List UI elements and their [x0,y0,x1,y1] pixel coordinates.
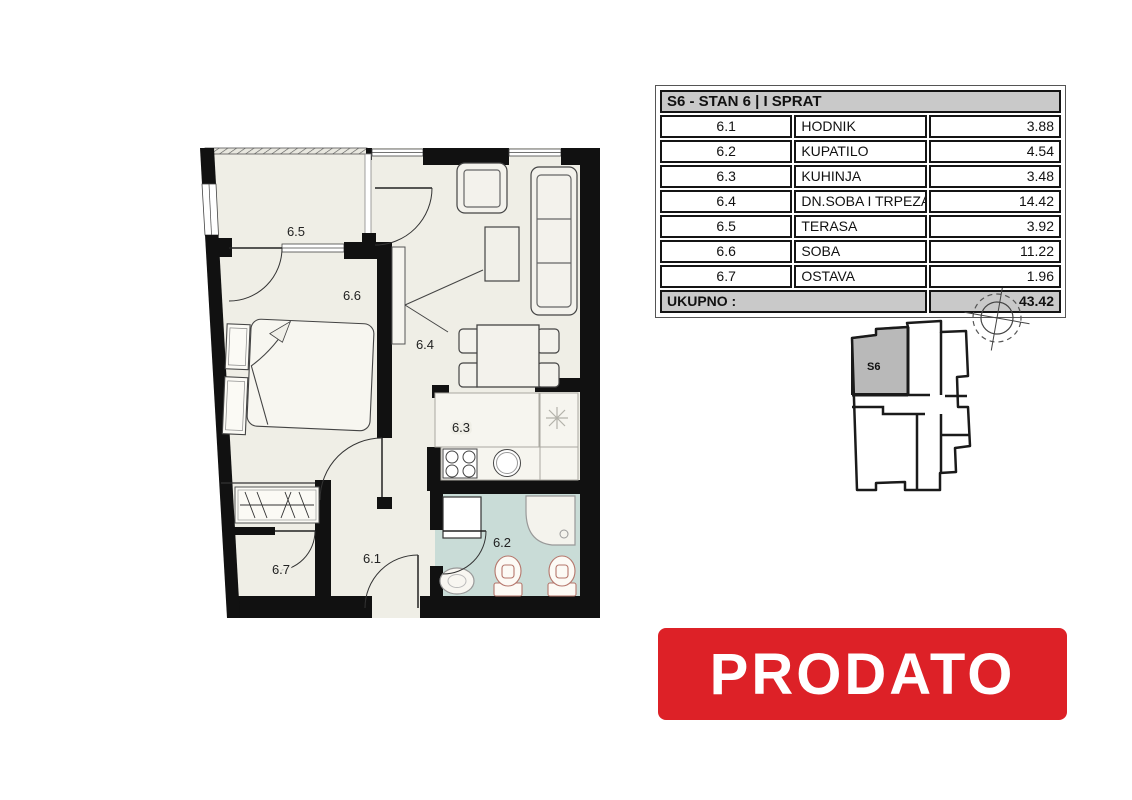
room-number-cell: 6.1 [660,115,792,138]
room-name-cell: DN.SOBA I TRPEZARIJA [794,190,926,213]
shelf [392,247,405,344]
table-header-row: S6 - STAN 6 | I SPRAT [660,90,1061,113]
room-label-6-4: 6.4 [416,337,434,352]
room-area-cell: 3.48 [929,165,1061,188]
room-label-6-3: 6.3 [452,420,470,435]
table-row: 6.4 DN.SOBA I TRPEZARIJA 14.42 [660,190,1061,213]
table-row: 6.5 TERASA 3.92 [660,215,1061,238]
room-number-cell: 6.6 [660,240,792,263]
table-row: 6.6 SOBA 11.22 [660,240,1061,263]
table-row: 6.2 KUPATILO 4.54 [660,140,1061,163]
bed [247,319,375,431]
counter [540,393,578,480]
nightstand [225,324,250,370]
room-number-cell: 6.7 [660,265,792,288]
bedroom-furniture [222,318,374,440]
room-number-cell: 6.3 [660,165,792,188]
room-area-cell: 4.54 [929,140,1061,163]
prodato-banner-text: PRODATO [710,641,1016,708]
room-name-cell: SOBA [794,240,926,263]
floorplan: 6.5 6.6 6.4 6.3 6.2 6.1 6.7 [185,135,615,630]
stove [443,449,477,478]
room-area-cell: 3.92 [929,215,1061,238]
table-row: 6.1 HODNIK 3.88 [660,115,1061,138]
table-row: 6.7 OSTAVA 1.96 [660,265,1061,288]
room-area-cell: 3.88 [929,115,1061,138]
kitchen-sink [494,450,521,477]
table-row: 6.3 KUHINJA 3.48 [660,165,1061,188]
room-label-6-1: 6.1 [363,551,381,566]
room-number-cell: 6.4 [660,190,792,213]
dining-table [477,325,539,387]
room-name-cell: HODNIK [794,115,926,138]
room-label-6-6: 6.6 [343,288,361,303]
counter [435,393,539,447]
room-label-6-5: 6.5 [287,224,305,239]
sofa [531,167,577,315]
room-area-cell: 1.96 [929,265,1061,288]
kitchen-fixtures [435,393,578,480]
room-name-cell: OSTAVA [794,265,926,288]
room-area-cell: 14.42 [929,190,1061,213]
room-label-6-2: 6.2 [493,535,511,550]
keyplan: S6 [845,288,1030,503]
room-name-cell: KUHINJA [794,165,926,188]
vent-star-icon [546,407,568,429]
chair [537,329,559,353]
room-label-6-7: 6.7 [272,562,290,577]
room-number-cell: 6.5 [660,215,792,238]
coffee-table [485,227,519,281]
room-area-cell: 11.22 [929,240,1061,263]
toilet [494,556,522,596]
washing-machine [443,497,481,538]
bidet [548,556,576,596]
room-name-cell: TERASA [794,215,926,238]
wardrobe [235,487,319,523]
nightstand [222,377,247,435]
compass-icon [959,288,1030,356]
area-table: S6 - STAN 6 | I SPRAT 6.1 HODNIK 3.88 6.… [655,85,1066,318]
chair [537,363,559,387]
room-number-cell: 6.2 [660,140,792,163]
keyplan-unit-label: S6 [867,361,880,373]
table-title: S6 - STAN 6 | I SPRAT [660,90,1061,113]
prodato-banner: PRODATO [658,628,1067,720]
armchair [457,163,507,213]
terrace-railing [205,148,367,154]
room-name-cell: KUPATILO [794,140,926,163]
